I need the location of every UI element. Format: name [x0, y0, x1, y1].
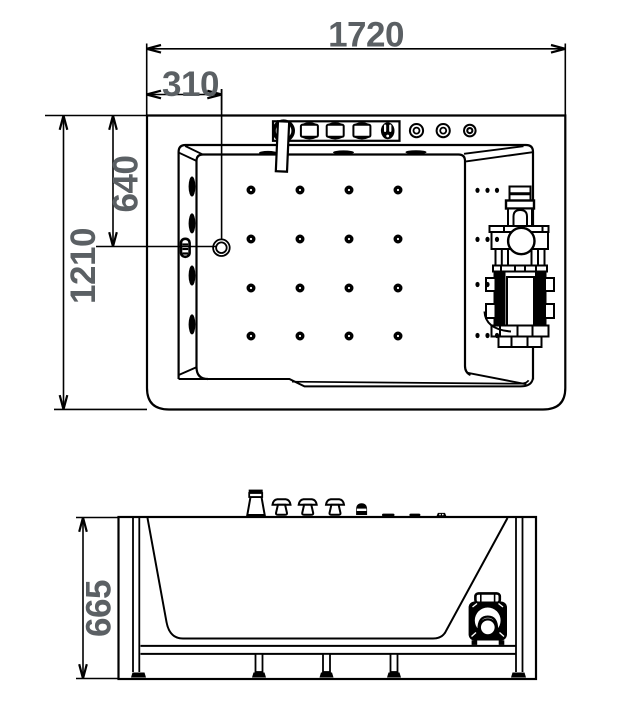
svg-text:310: 310 — [162, 65, 219, 104]
svg-text:640: 640 — [107, 156, 146, 213]
svg-text:665: 665 — [80, 580, 119, 637]
svg-text:1210: 1210 — [64, 228, 103, 304]
svg-text:1720: 1720 — [328, 16, 404, 55]
